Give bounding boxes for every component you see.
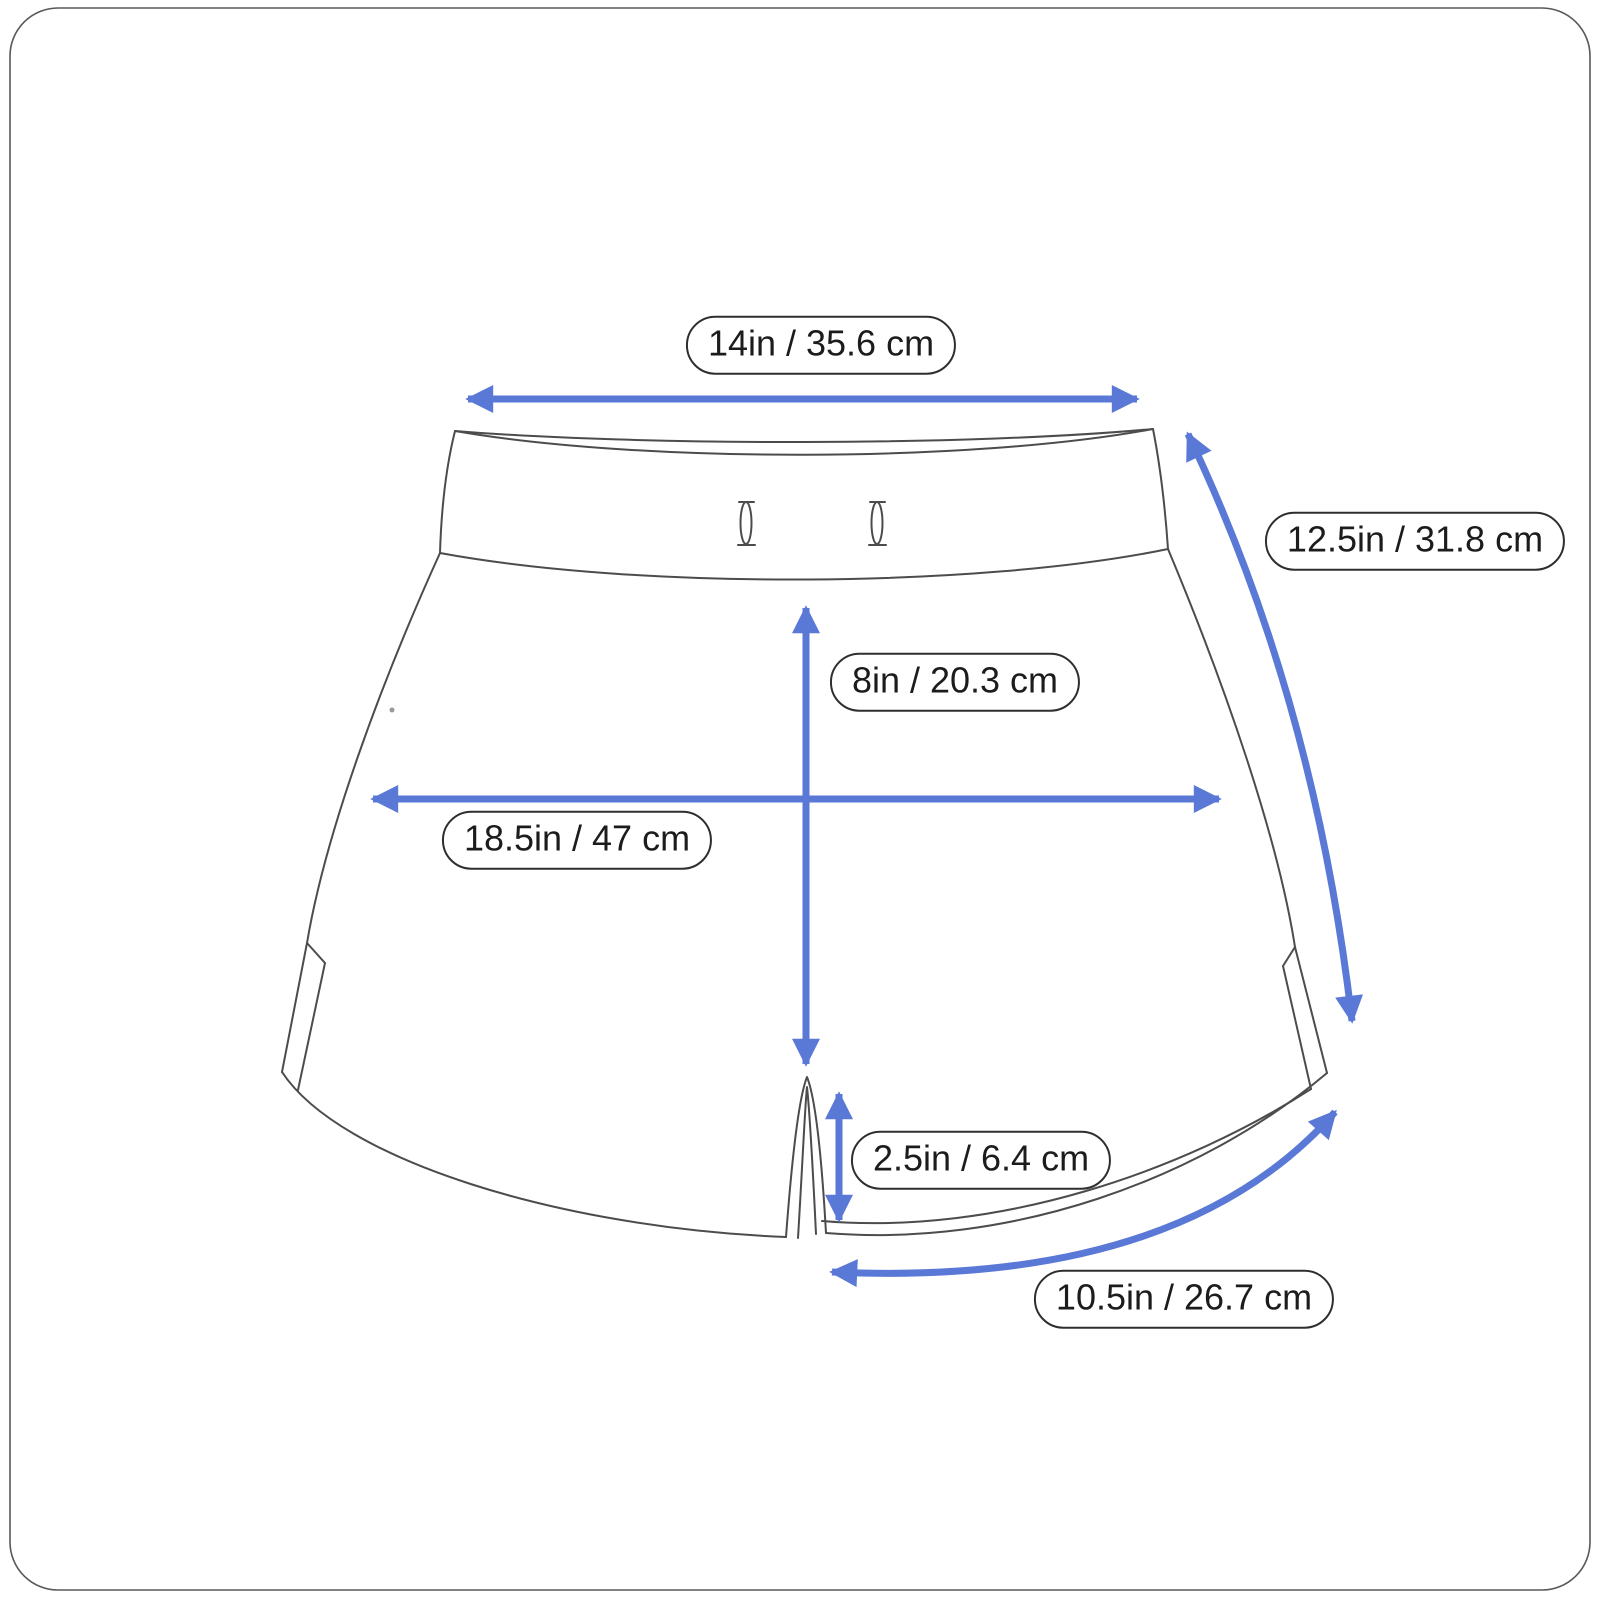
- diagram-artwork: [0, 0, 1600, 1600]
- shorts-measurement-diagram: 14in / 35.6 cm 12.5in / 31.8 cm 8in / 20…: [0, 0, 1600, 1600]
- left-side-seam: [282, 553, 440, 1072]
- hem-left: [282, 1072, 786, 1237]
- waistband-right-edge: [1153, 429, 1168, 549]
- right-side-vent: [1283, 947, 1311, 1089]
- center-slit-inner: [798, 1087, 816, 1238]
- right-side-seam: [1168, 549, 1327, 1073]
- label-waist-width: 14in / 35.6 cm: [686, 316, 956, 375]
- waistband-left-edge: [440, 431, 455, 553]
- label-side-length: 12.5in / 31.8 cm: [1265, 512, 1565, 571]
- label-side-slit: 2.5in / 6.4 cm: [851, 1131, 1111, 1190]
- stray-mark: [390, 708, 395, 713]
- label-leg-opening: 10.5in / 26.7 cm: [1034, 1270, 1334, 1329]
- drawstring-eyelet-left: [738, 502, 755, 545]
- label-sweep-width: 18.5in / 47 cm: [442, 811, 712, 870]
- waistband-bottom-seam: [440, 549, 1168, 580]
- label-front-rise: 8in / 20.3 cm: [830, 653, 1080, 712]
- waist-opening-back-edge: [455, 429, 1153, 442]
- drawstring-eyelet-right: [869, 502, 886, 545]
